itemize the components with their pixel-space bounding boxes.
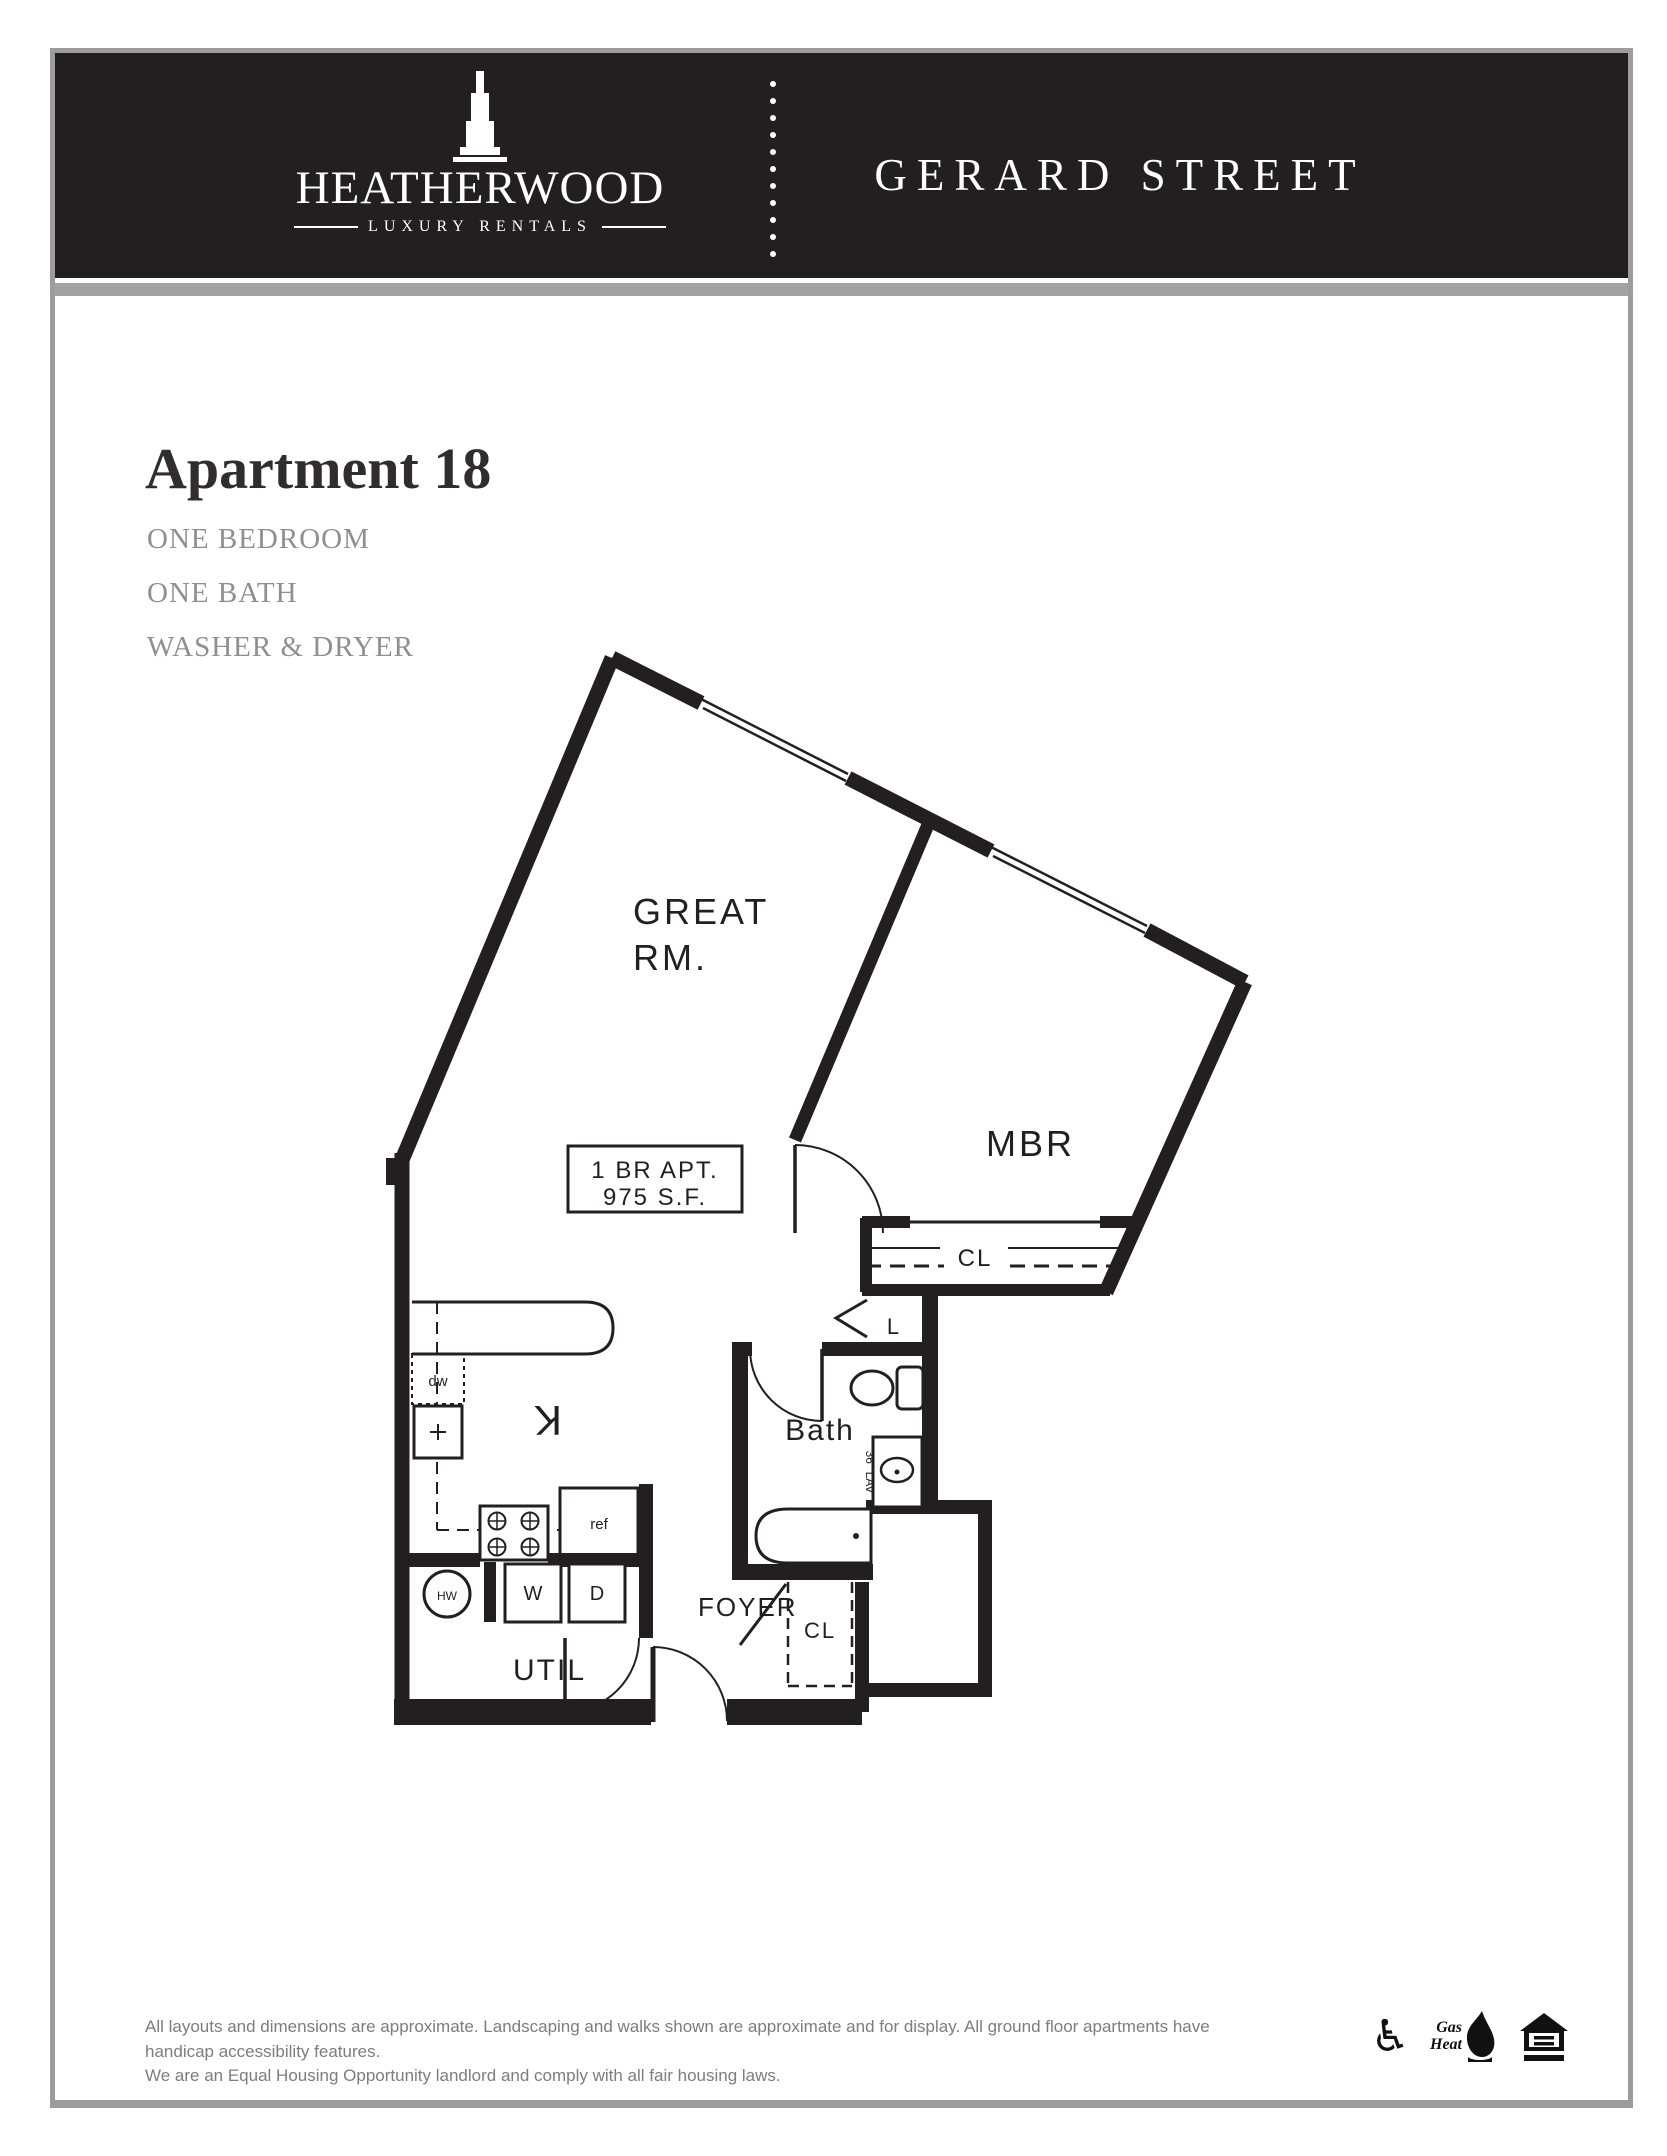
property-name: GERARD STREET — [855, 149, 1385, 201]
label-util: UTIL — [513, 1654, 586, 1687]
bedroom-divider-wall — [795, 820, 930, 1140]
apartment-title: Apartment 18 — [145, 435, 491, 502]
label-washer: W — [524, 1583, 543, 1605]
gas-heat-icon: Gas Heat — [1430, 2011, 1498, 2063]
tower-icon — [450, 71, 510, 163]
feature-bath: ONE BATH — [147, 577, 414, 610]
gray-divider-bar — [55, 283, 1628, 296]
bathtub-icon — [756, 1509, 871, 1563]
tagline-rule-left — [294, 226, 358, 228]
toilet-icon — [851, 1367, 923, 1409]
feature-bedroom: ONE BEDROOM — [147, 523, 414, 556]
equal-housing-icon — [1518, 2011, 1570, 2063]
feature-washer-dryer: WASHER & DRYER — [147, 631, 414, 664]
label-dryer: D — [590, 1583, 604, 1605]
brand-tagline: LUXURY RENTALS — [368, 218, 592, 236]
label-apt-size: 975 S.F. — [603, 1184, 707, 1211]
gas-heat-label-line1: Gas — [1430, 2020, 1462, 2037]
gas-heat-label-line2: Heat — [1430, 2037, 1462, 2054]
window-mbr — [991, 847, 1147, 933]
flyer-page: { "brand": { "name": "HEATHERWOOD", "tag… — [0, 0, 1667, 2156]
window-great-room — [701, 699, 848, 781]
label-apt-type: 1 BR APT. — [591, 1157, 718, 1184]
label-great-rm-line1: GREAT — [633, 891, 769, 932]
disclaimer-line1: All layouts and dimensions are approxima… — [145, 2015, 1225, 2064]
kitchen-sink-icon — [414, 1406, 462, 1458]
feature-list: ONE BEDROOM ONE BATH WASHER & DRYER — [147, 523, 414, 685]
heatherwood-logo: HEATHERWOOD LUXURY RENTALS — [290, 71, 670, 271]
label-hw: HW — [437, 1589, 458, 1603]
bath-door — [750, 1349, 822, 1421]
label-lav: 36" LAV — [863, 1451, 877, 1494]
label-cl-master: CL — [958, 1245, 993, 1272]
disclaimer-line2: We are an Equal Housing Opportunity land… — [145, 2064, 1225, 2089]
label-bath: Bath — [785, 1414, 855, 1447]
handicap-accessible-icon: ♿ — [1371, 2015, 1410, 2059]
footer-icons: ♿ Gas Heat — [1371, 2011, 1570, 2063]
dotted-divider — [770, 81, 776, 257]
label-foyer: FOYER — [698, 1592, 798, 1622]
linen-closet — [836, 1300, 867, 1337]
brand-name: HEATHERWOOD — [290, 165, 670, 212]
vanity-sink-icon — [873, 1437, 922, 1507]
stove-icon — [480, 1506, 548, 1560]
disclaimer-text: All layouts and dimensions are approxima… — [145, 2015, 1225, 2089]
document-frame: HEATHERWOOD LUXURY RENTALS GERARD STREET… — [50, 48, 1633, 2108]
label-dw: dw — [428, 1373, 447, 1390]
label-ref: ref — [590, 1516, 608, 1533]
label-kitchen: K — [534, 1397, 562, 1444]
label-great-rm-line2: RM. — [633, 937, 708, 978]
label-linen: L — [887, 1314, 899, 1339]
entry-door — [653, 1647, 727, 1722]
flame-icon — [1458, 2011, 1498, 2063]
tagline-rule-right — [602, 226, 666, 228]
floor-plan: GREAT RM. MBR 1 BR APT. 975 S.F. CL L Ba… — [380, 640, 1260, 1800]
label-cl-foyer: CL — [804, 1618, 836, 1643]
header-banner: HEATHERWOOD LUXURY RENTALS GERARD STREET — [55, 53, 1628, 278]
label-mbr: MBR — [986, 1123, 1075, 1164]
